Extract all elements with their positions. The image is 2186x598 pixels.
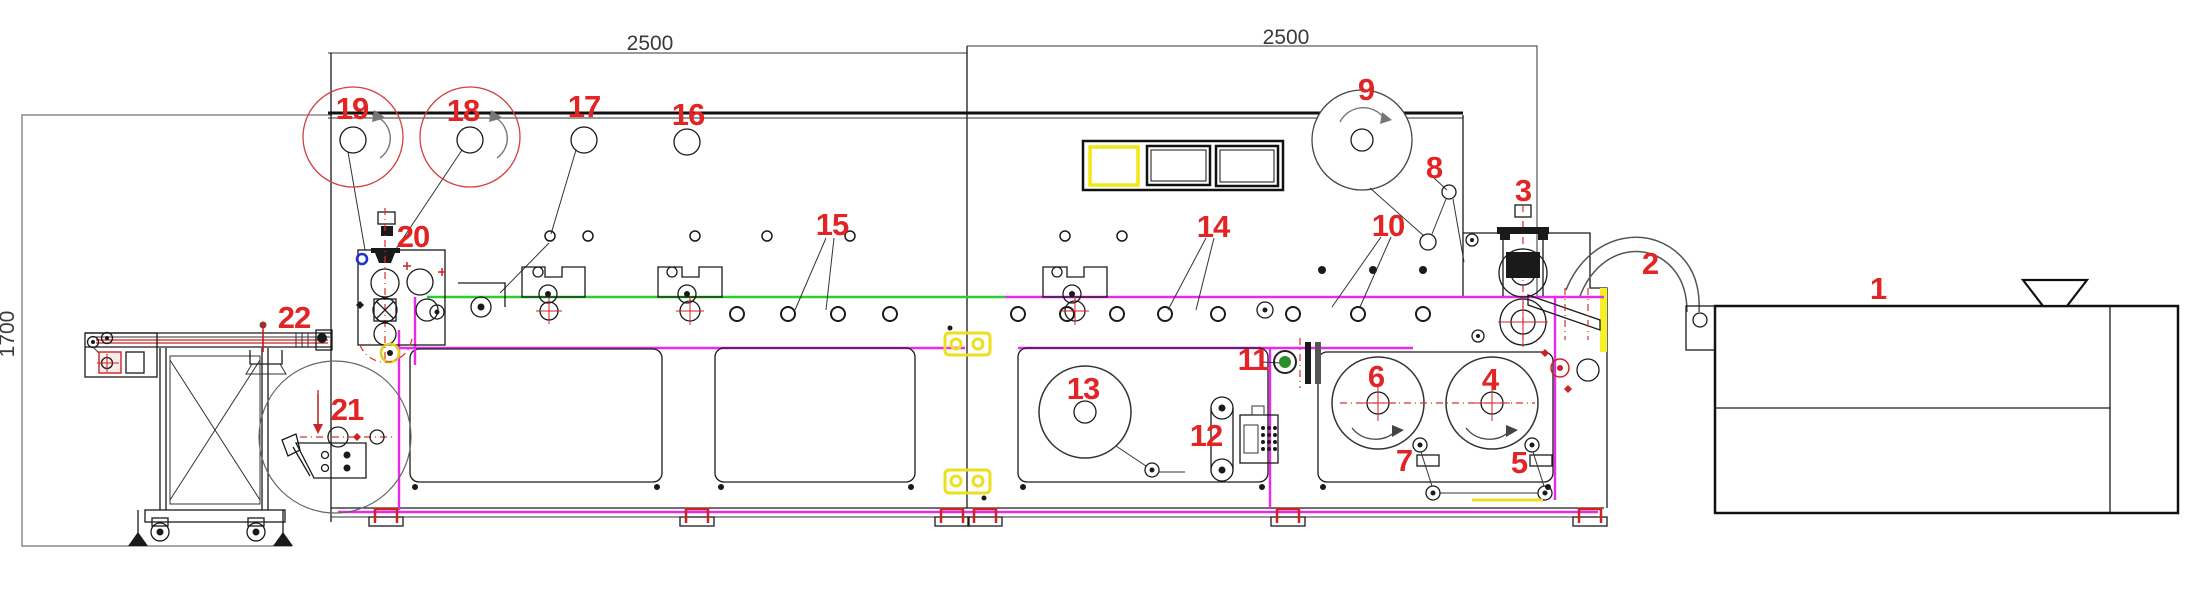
callout-22: 22 xyxy=(278,300,310,335)
callout-15: 15 xyxy=(816,207,849,242)
callout-11: 11 xyxy=(1238,342,1270,377)
pipe-2 xyxy=(1566,237,1699,312)
callout-9: 9 xyxy=(1358,72,1375,107)
reel-13 xyxy=(1039,366,1185,477)
callout-18: 18 xyxy=(447,93,480,128)
callout-4: 4 xyxy=(1482,362,1500,397)
callout-12: 12 xyxy=(1190,418,1222,453)
leader-lines xyxy=(795,178,1447,363)
conveyor-table xyxy=(85,330,332,546)
callout-5: 5 xyxy=(1511,445,1528,480)
extruder-machine-1 xyxy=(1686,280,2178,513)
reels-6-4 xyxy=(1332,357,1538,449)
callout-3: 3 xyxy=(1515,173,1532,208)
drawing-svg: 2500 2500 1700 1 2 3 4 5 6 7 8 9 10 11 1… xyxy=(0,0,2186,598)
callout-17: 17 xyxy=(568,89,600,124)
callout-2: 2 xyxy=(1642,246,1658,281)
callout-19: 19 xyxy=(336,91,369,126)
callout-6: 6 xyxy=(1368,359,1385,394)
rewind-station-21 xyxy=(259,361,411,513)
roller-hole-row xyxy=(545,231,1430,321)
callout-10: 10 xyxy=(1372,208,1404,243)
callout-14: 14 xyxy=(1197,209,1231,244)
callout-20: 20 xyxy=(397,219,429,254)
control-panel xyxy=(1083,141,1283,190)
machine-layout-drawing: 2500 2500 1700 1 2 3 4 5 6 7 8 9 10 11 1… xyxy=(0,0,2186,598)
callout-1: 1 xyxy=(1870,271,1887,306)
dim-height: 1700 xyxy=(0,311,19,358)
web-path xyxy=(348,150,1604,297)
callout-8: 8 xyxy=(1426,150,1443,185)
callout-7: 7 xyxy=(1396,443,1412,478)
callout-16: 16 xyxy=(672,97,705,132)
dim-section2: 2500 xyxy=(1263,26,1310,49)
callout-13: 13 xyxy=(1067,371,1100,406)
dim-section1: 2500 xyxy=(627,32,674,55)
callout-21: 21 xyxy=(331,392,364,427)
